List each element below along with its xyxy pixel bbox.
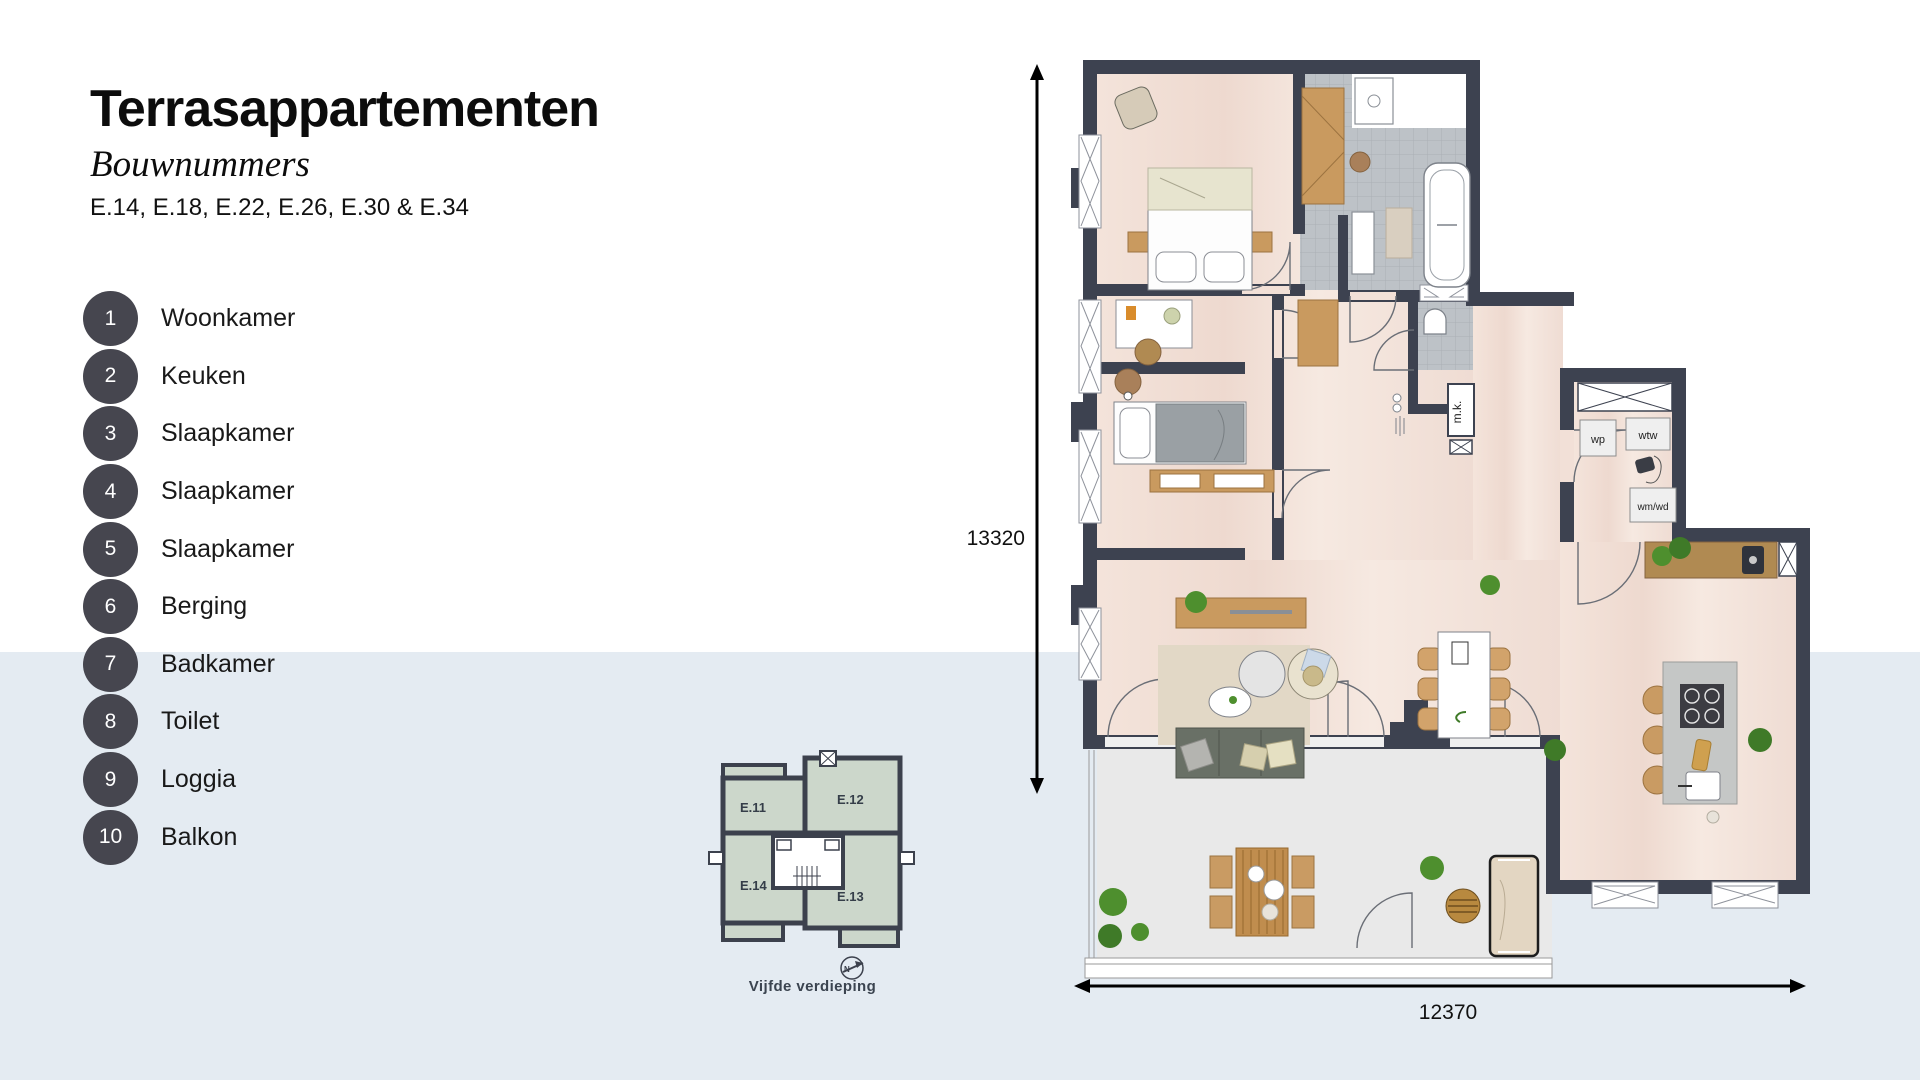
legend-item: 10Balkon: [83, 808, 295, 866]
bath-mat: [1386, 208, 1412, 258]
compass-icon: N: [841, 957, 863, 979]
legend-item: 8Toilet: [83, 693, 295, 751]
legend-label: Slaapkamer: [161, 535, 294, 564]
legend-label: Slaapkamer: [161, 419, 294, 448]
legend-label: Berging: [161, 592, 247, 621]
outdoor-chair: [1292, 856, 1314, 888]
plant: [1099, 888, 1127, 916]
wardrobe: [1302, 88, 1344, 204]
legend-item: 7Badkamer: [83, 636, 295, 694]
page: Terrasappartementen Bouwnummers E.14, E.…: [0, 0, 1920, 1080]
coffee-table: [1239, 651, 1285, 697]
legend-item: 1Woonkamer: [83, 290, 295, 348]
build-numbers: E.14, E.18, E.22, E.26, E.30 & E.34: [90, 194, 730, 222]
wardrobe: [1298, 300, 1338, 366]
plant: [1420, 856, 1444, 880]
unit-label-e14: E.14: [740, 878, 768, 893]
vanity: [1352, 212, 1374, 274]
plant: [1098, 924, 1122, 948]
pillow: [1120, 408, 1150, 458]
dimension-width: 12370: [1074, 979, 1806, 1024]
nightstand: [1252, 232, 1272, 252]
pillow: [1266, 740, 1296, 768]
legend-badge: 8: [83, 694, 138, 749]
legend-item: 3Slaapkamer: [83, 405, 295, 463]
plant: [1669, 537, 1691, 559]
compass-n-label: N: [844, 965, 850, 974]
toilet: [1424, 309, 1446, 334]
outdoor-bench: [1490, 856, 1538, 956]
legend-badge: 3: [83, 406, 138, 461]
plant: [1748, 728, 1772, 752]
pillow: [1204, 252, 1244, 282]
wmwd-label: wm/wd: [1636, 502, 1668, 513]
pillow: [1240, 744, 1268, 771]
legend-label: Loggia: [161, 765, 236, 794]
legend-label: Toilet: [161, 707, 219, 736]
dimension-height: 13320: [967, 64, 1044, 794]
pillow: [1156, 252, 1196, 282]
legend-badge: 2: [83, 349, 138, 404]
legend-badge: 4: [83, 464, 138, 519]
legend-label: Woonkamer: [161, 304, 295, 333]
legend-badge: 10: [83, 810, 138, 865]
unit-label-e11: E.11: [740, 800, 766, 815]
legend-label: Slaapkamer: [161, 477, 294, 506]
wp-label: wp: [1590, 434, 1605, 446]
room-legend: 1Woonkamer 2Keuken 3Slaapkamer 4Slaapkam…: [83, 290, 295, 866]
stool: [1350, 152, 1370, 172]
mk-label: m.k.: [1450, 401, 1464, 424]
legend-item: 4Slaapkamer: [83, 463, 295, 521]
outdoor-chair: [1210, 856, 1232, 888]
terrace-floor: [1097, 749, 1552, 960]
legend-item: 2Keuken: [83, 348, 295, 406]
unit-label-e13: E.13: [837, 889, 864, 904]
legend-badge: 9: [83, 752, 138, 807]
legend-badge: 5: [83, 522, 138, 577]
unit-label-e12: E.12: [837, 792, 864, 807]
legend-item: 5Slaapkamer: [83, 520, 295, 578]
plant: [1480, 575, 1500, 595]
dimension-height-label: 13320: [967, 527, 1025, 550]
legend-label: Badkamer: [161, 650, 275, 679]
side-table: [1115, 369, 1141, 395]
plant: [1544, 739, 1566, 761]
dimension-width-label: 12370: [1419, 1001, 1477, 1024]
page-subtitle: Bouwnummers: [90, 143, 730, 186]
legend-badge: 6: [83, 579, 138, 634]
toilet-floor: [1414, 300, 1473, 370]
mini-plan-caption: Vijfde verdieping: [705, 978, 920, 995]
page-title: Terrasappartementen: [90, 82, 730, 137]
desk-chair: [1135, 339, 1161, 365]
outdoor-chair: [1210, 896, 1232, 928]
legend-badge: 7: [83, 637, 138, 692]
legend-label: Balkon: [161, 823, 237, 852]
main-floor-plan: m.k.: [940, 30, 1840, 1050]
legend-item: 9Loggia: [83, 751, 295, 809]
legend-badge: 1: [83, 291, 138, 346]
legend-item: 6Berging: [83, 578, 295, 636]
plant: [1185, 591, 1207, 613]
outdoor-chair: [1292, 896, 1314, 928]
nightstand: [1128, 232, 1148, 252]
wtw-label: wtw: [1638, 430, 1658, 442]
legend-label: Keuken: [161, 362, 246, 391]
plant: [1652, 546, 1672, 566]
header: Terrasappartementen Bouwnummers E.14, E.…: [90, 82, 730, 222]
mini-floor-plan: E.11 E.12 E.14 E.13 N: [705, 748, 920, 993]
plant: [1131, 923, 1149, 941]
meter-closet: m.k.: [1448, 384, 1474, 454]
